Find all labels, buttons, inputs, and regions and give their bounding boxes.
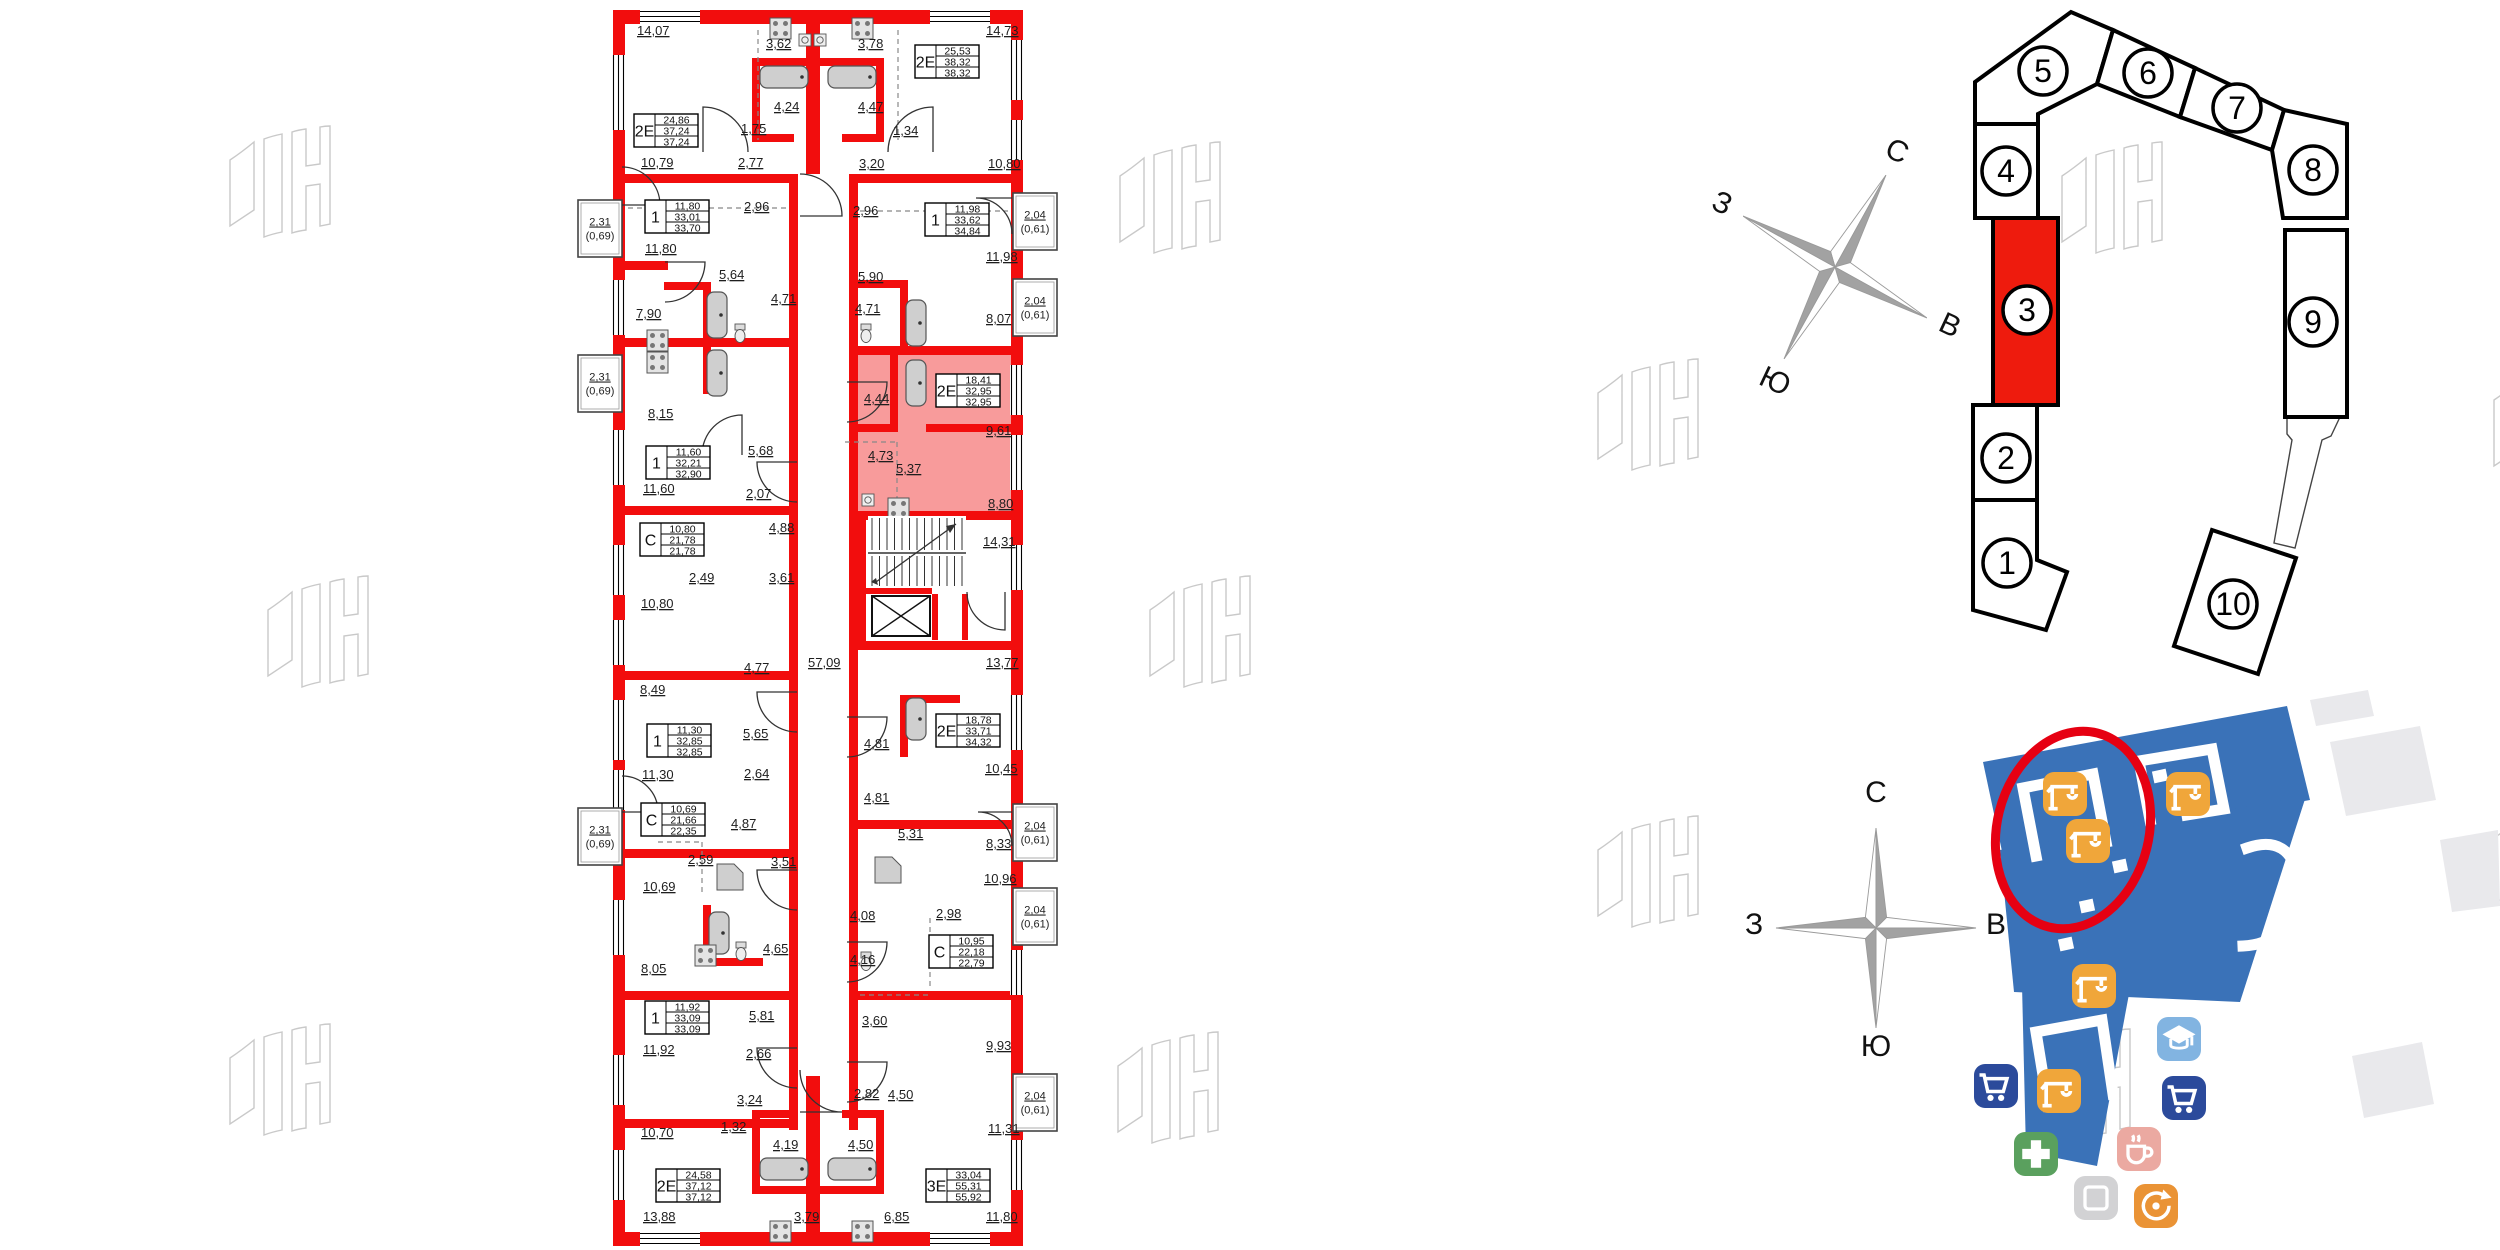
- toilet-icon: [736, 942, 746, 961]
- dim-label: 8,49: [640, 682, 665, 697]
- dim-label: 11,92: [643, 1042, 675, 1057]
- dim-label: 4,81: [864, 790, 889, 805]
- dim-label: 14,73: [986, 23, 1019, 38]
- dim-label: 4,87: [731, 816, 756, 831]
- wall: [613, 174, 798, 183]
- apartment-type-label: 1: [651, 1011, 660, 1028]
- bathtub-icon: [906, 698, 926, 740]
- dim-label: 4,08: [850, 908, 875, 923]
- dim-label: 2,96: [853, 203, 878, 218]
- section-number: 8: [2304, 152, 2322, 188]
- pn-logo-watermark-icon: [1598, 816, 1698, 927]
- balcony-coef-label: (0,69): [586, 386, 615, 398]
- wall: [613, 261, 668, 270]
- dim-label: 10,45: [985, 761, 1018, 776]
- apartment-card[interactable]: 111,6032,2132,90: [646, 446, 710, 480]
- apartment-area-value: 33,70: [674, 222, 700, 234]
- apartment-type-label: С: [646, 813, 658, 830]
- staircase: [868, 516, 966, 588]
- dim-label: 5,65: [743, 726, 768, 741]
- apartment-area-value: 37,24: [663, 136, 689, 148]
- balcony-area-label: 2,31: [589, 217, 610, 229]
- ghost-building: [2352, 1042, 2434, 1118]
- wall: [849, 424, 898, 432]
- apartment-area-value: 32,90: [675, 468, 701, 480]
- balcony-coef-label: (0,69): [586, 839, 615, 851]
- apartment-area-value: 22,35: [670, 825, 696, 837]
- dim-label: 5,31: [898, 826, 923, 841]
- wall: [932, 594, 938, 640]
- balcony-coef-label: (0,61): [1021, 1105, 1050, 1117]
- dim-label: 10,70: [641, 1125, 674, 1140]
- balcony: 2,31(0,69): [578, 200, 622, 257]
- dim-label: 8,05: [641, 961, 666, 976]
- dim-label: 5,90: [858, 269, 883, 284]
- wall: [752, 58, 884, 66]
- dim-label: 5,64: [719, 267, 744, 282]
- site-compass-icon: СЗВЮ: [1745, 776, 2006, 1063]
- section-number: 5: [2034, 53, 2052, 89]
- dim-label: 4,16: [850, 952, 875, 967]
- apartment-type-label: 2Е: [657, 1179, 677, 1196]
- wall: [849, 991, 1023, 1000]
- apartment-type-label: 3Е: [927, 1179, 947, 1196]
- dim-label: 8,07: [986, 311, 1011, 326]
- compass-direction-label: Ю: [1754, 360, 1795, 403]
- section-number: 1: [1998, 545, 2016, 581]
- dim-label: 3,20: [859, 156, 884, 171]
- apartment-card[interactable]: 111,3032,8532,85: [647, 724, 711, 758]
- pn-logo-watermark-icon: [1120, 142, 1220, 253]
- ghost-building: [2310, 690, 2374, 726]
- balcony-coef-label: (0,61): [1021, 919, 1050, 931]
- scheme-section-6[interactable]: 6: [2097, 30, 2195, 117]
- dim-label: 11,31: [988, 1121, 1020, 1136]
- balcony-outline: [1013, 193, 1057, 250]
- crane-icon: [2166, 772, 2210, 816]
- dim-label: 4,88: [769, 520, 794, 535]
- wall: [664, 282, 711, 290]
- balcony-area-label: 2,31: [589, 825, 610, 837]
- apartment-card[interactable]: 111,9233,0933,09: [645, 1001, 709, 1035]
- dim-label: 11,80: [986, 1209, 1018, 1224]
- ghost-building: [2330, 726, 2436, 816]
- compass-direction-label: С: [1880, 132, 1914, 171]
- apartment-area-value: 34,84: [954, 225, 980, 237]
- dim-label: 10,69: [643, 879, 676, 894]
- cart-icon: [1974, 1064, 2018, 1108]
- compass-direction-label: Ю: [1861, 1030, 1891, 1063]
- scheme-compass-icon: СЗВЮ: [1707, 132, 1966, 403]
- dim-label: 4,44: [864, 391, 889, 406]
- compass-direction-label: З: [1745, 908, 1763, 941]
- dim-label: 9,61: [986, 423, 1011, 438]
- stove-icon: [647, 330, 668, 351]
- apartment-type-label: 2Е: [916, 55, 936, 72]
- dim-label: 4,81: [864, 736, 889, 751]
- wall: [849, 346, 1023, 355]
- section-number: 6: [2139, 55, 2157, 91]
- icon-tile: [2117, 1127, 2161, 1171]
- scheme-section-8[interactable]: 8: [2272, 110, 2347, 218]
- dim-label: 4,50: [848, 1137, 873, 1152]
- dim-label: 4,77: [744, 660, 769, 675]
- plus-icon: [2014, 1132, 2058, 1176]
- balcony-area-label: 2,04: [1024, 1091, 1045, 1103]
- swirl-icon: [2134, 1184, 2178, 1228]
- dim-label: 4,50: [888, 1087, 913, 1102]
- crane-icon: [2066, 819, 2110, 863]
- shower-icon: [875, 857, 901, 883]
- stove-icon: [888, 498, 909, 519]
- apartment-card[interactable]: 2Е25,5338,3238,32: [915, 45, 979, 79]
- washer-icon: [814, 34, 826, 46]
- dim-label: 11,80: [645, 241, 677, 256]
- apartment-area-value: 22,79: [958, 957, 984, 969]
- section-number: 7: [2228, 90, 2246, 126]
- apartment-card[interactable]: 2Е24,8637,2437,24: [634, 114, 698, 148]
- plan-canvas: 2,31(0,69)2,31(0,69)2,31(0,69)2,04(0,61)…: [0, 0, 2500, 1250]
- balcony-coef-label: (0,61): [1021, 310, 1050, 322]
- wall: [890, 352, 898, 430]
- dim-label: 4,47: [858, 99, 883, 114]
- shower-icon: [717, 864, 743, 890]
- apartment-area-value: 55,92: [955, 1191, 981, 1203]
- wall: [962, 594, 968, 640]
- pn-logo-watermark-icon: [2494, 366, 2500, 477]
- dim-label: 4,73: [868, 448, 893, 463]
- dim-label: 2,66: [746, 1046, 771, 1061]
- building-scheme: 56784321910: [1973, 12, 2347, 674]
- apartment-type-label: С: [645, 533, 657, 550]
- balcony-outline: [578, 200, 622, 257]
- wall: [849, 641, 1023, 650]
- scheme-section-3[interactable]: 3: [1993, 218, 2058, 405]
- cap-icon: [2157, 1017, 2201, 1061]
- wall: [849, 820, 1023, 829]
- bathtub-icon: [707, 350, 727, 396]
- dim-label: 3,24: [737, 1092, 762, 1107]
- dim-label: 4,65: [763, 941, 788, 956]
- cart-icon: [2162, 1076, 2206, 1120]
- toilet-icon: [861, 324, 871, 343]
- balcony-outline: [1013, 1074, 1057, 1131]
- bathtub-icon: [828, 1158, 876, 1180]
- dim-label: 1,75: [741, 121, 766, 136]
- wall: [752, 1110, 760, 1194]
- dim-label: 4,71: [771, 291, 796, 306]
- washer-icon: [862, 494, 874, 506]
- crane-icon: [2072, 964, 2116, 1008]
- apartment-card[interactable]: 2Е24,5837,1237,12: [656, 1169, 720, 1203]
- section-number: 4: [1997, 153, 2015, 189]
- stove-icon: [695, 945, 716, 966]
- balcony-coef-label: (0,69): [586, 231, 615, 243]
- apartment-type-label: 1: [653, 734, 662, 751]
- balcony-outline: [1013, 279, 1057, 336]
- dim-label: 5,68: [748, 443, 773, 458]
- dim-label: 11,60: [643, 481, 675, 496]
- dim-label: 1,32: [721, 1119, 746, 1134]
- stove-icon: [852, 1221, 873, 1242]
- toilet-icon: [735, 324, 745, 343]
- scheme-section-4[interactable]: 4: [1975, 124, 2038, 218]
- balcony: 2,04(0,61): [1013, 804, 1057, 861]
- scheme-section-1[interactable]: 1: [1973, 500, 2067, 630]
- crane-icon: [2037, 1069, 2081, 1113]
- dim-label: 1,34: [893, 123, 918, 138]
- bathtub-icon: [760, 1158, 808, 1180]
- apartment-area-value: 33,09: [674, 1023, 700, 1035]
- dim-label: 2,59: [688, 852, 713, 867]
- apartment-area-value: 37,12: [685, 1191, 711, 1203]
- box-icon: [2074, 1176, 2118, 1220]
- dim-label: 3,79: [794, 1209, 819, 1224]
- wall: [876, 1110, 884, 1194]
- dim-label: 2,07: [746, 486, 771, 501]
- balcony: 2,31(0,69): [578, 808, 622, 865]
- stove-icon: [647, 352, 668, 373]
- wall: [613, 506, 798, 515]
- bathtub-icon: [906, 360, 926, 406]
- floor-plan-page: 2,31(0,69)2,31(0,69)2,31(0,69)2,04(0,61)…: [0, 0, 2500, 1250]
- wall: [849, 174, 858, 1130]
- apartment-area-value: 32,95: [965, 396, 991, 408]
- bathtub-icon: [828, 66, 876, 88]
- dim-label: 11,30: [642, 767, 674, 782]
- apartment-type-label: С: [934, 945, 946, 962]
- dim-label: 2,77: [738, 155, 763, 170]
- apartment-area-value: 38,32: [944, 67, 970, 79]
- pn-logo-watermark-icon: [230, 126, 330, 237]
- icon-tile: [2074, 1176, 2118, 1220]
- wall: [849, 174, 1023, 183]
- dim-label: 13,77: [986, 655, 1019, 670]
- dim-label: 8,15: [648, 406, 673, 421]
- apartment-type-label: 1: [931, 213, 940, 230]
- site-plan: [1974, 690, 2500, 1228]
- apartment-card[interactable]: 3Е33,0455,3155,92: [926, 1169, 990, 1203]
- dim-label: 10,80: [988, 156, 1021, 171]
- dim-label: 10,79: [641, 155, 674, 170]
- apartment-card[interactable]: С10,9522,1822,79: [929, 935, 993, 969]
- compass-direction-label: В: [1986, 908, 2006, 941]
- pn-logo-watermark-icon: [2062, 142, 2162, 253]
- stove-icon: [770, 1221, 791, 1242]
- wall: [752, 1186, 884, 1194]
- ghost-building: [2440, 830, 2500, 912]
- dim-label: 4,24: [774, 99, 799, 114]
- apartment-area-value: 34,32: [965, 736, 991, 748]
- door-arc: [800, 174, 842, 216]
- apartment-type-label: 1: [651, 210, 660, 227]
- dim-label: 3,62: [766, 36, 791, 51]
- balcony: 2,31(0,69): [578, 355, 622, 412]
- dim-label: 14,31: [983, 534, 1016, 549]
- balcony-area-label: 2,04: [1024, 821, 1045, 833]
- pn-logo-watermark-icon: [1118, 1032, 1218, 1143]
- dim-label: 11,98: [986, 249, 1018, 264]
- balcony-coef-label: (0,61): [1021, 835, 1050, 847]
- scheme-section-9[interactable]: 9: [2285, 230, 2347, 417]
- wall: [842, 134, 884, 142]
- pn-logo-watermark-icon: [268, 576, 368, 687]
- icon-tile: [2162, 1076, 2206, 1120]
- dim-label: 9,93: [986, 1038, 1011, 1053]
- dim-label: 8,80: [988, 496, 1013, 511]
- wall: [858, 588, 932, 594]
- dim-label: 2,82: [854, 1086, 879, 1101]
- balcony: 2,04(0,61): [1013, 193, 1057, 250]
- wall: [752, 1110, 794, 1118]
- cup-icon: [2117, 1127, 2161, 1171]
- scheme-section-10[interactable]: 10: [2174, 530, 2296, 674]
- dim-label: 4,71: [855, 301, 880, 316]
- pn-logo-watermark-icon: [1150, 576, 1250, 687]
- crane-icon: [2043, 772, 2087, 816]
- balcony-coef-label: (0,61): [1021, 224, 1050, 236]
- compass-direction-label: С: [1865, 776, 1887, 809]
- apartment-card[interactable]: 2Е18,4132,9532,95: [936, 374, 1000, 408]
- scheme-section-5[interactable]: 5: [1975, 12, 2113, 124]
- bathtub-icon: [906, 300, 926, 346]
- dim-label: 3,61: [769, 570, 794, 585]
- dim-label: 8,33: [986, 836, 1011, 851]
- dim-label: 3,51: [771, 854, 796, 869]
- balcony: 2,04(0,61): [1013, 279, 1057, 336]
- compass-direction-label: В: [1934, 306, 1966, 344]
- dim-label: 14,07: [637, 23, 670, 38]
- wall: [613, 991, 798, 1000]
- elevator: [872, 596, 930, 636]
- apartment-card[interactable]: С10,6921,6622,35: [641, 803, 705, 837]
- dim-label: 57,09: [808, 655, 841, 670]
- dim-label: 3,78: [858, 36, 883, 51]
- balcony-outline: [578, 808, 622, 865]
- section-number: 9: [2304, 304, 2322, 340]
- pn-logo-watermark-icon: [230, 1024, 330, 1135]
- balcony-area-label: 2,31: [589, 372, 610, 384]
- apartment-area-value: 32,85: [676, 746, 702, 758]
- dim-label: 10,80: [641, 596, 674, 611]
- apartment-card[interactable]: 111,9833,6234,84: [925, 203, 989, 237]
- apartment-type-label: 2Е: [937, 384, 957, 401]
- pn-logo-watermark-icon: [1598, 359, 1698, 470]
- dim-label: 2,98: [936, 906, 961, 921]
- dim-label: 2,64: [744, 766, 769, 781]
- scheme-section-7[interactable]: 7: [2180, 68, 2284, 150]
- dim-label: 4,19: [773, 1137, 798, 1152]
- bathtub-icon: [760, 66, 808, 88]
- washer-icon: [799, 34, 811, 46]
- apartment-card[interactable]: С10,8021,7821,78: [640, 523, 704, 557]
- balcony-area-label: 2,04: [1024, 296, 1045, 308]
- wall: [613, 671, 798, 680]
- apartment-area-value: 21,78: [669, 545, 695, 557]
- compass-direction-label: З: [1707, 185, 1737, 223]
- dim-label: 7,90: [636, 306, 661, 321]
- balcony: 2,04(0,61): [1013, 1074, 1057, 1131]
- apartment-card[interactable]: 111,8033,0133,70: [645, 200, 709, 234]
- bathtub-icon: [707, 292, 727, 338]
- section-number: 2: [1997, 440, 2015, 476]
- apartment-type-label: 2Е: [937, 724, 957, 741]
- balcony: 2,04(0,61): [1013, 888, 1057, 945]
- section-number: 10: [2215, 586, 2251, 622]
- section-connector: [2274, 417, 2340, 548]
- balcony-outline: [578, 355, 622, 412]
- dim-label: 2,96: [744, 199, 769, 214]
- dim-label: 6,85: [884, 1209, 909, 1224]
- floor-plan: 2,31(0,69)2,31(0,69)2,31(0,69)2,04(0,61)…: [578, 10, 1057, 1246]
- apartment-type-label: 1: [652, 456, 661, 473]
- balcony-area-label: 2,04: [1024, 210, 1045, 222]
- door-arc: [967, 592, 1005, 630]
- balcony-outline: [1013, 804, 1057, 861]
- wall: [858, 511, 866, 649]
- dim-label: 5,81: [749, 1008, 774, 1023]
- dim-label: 10,96: [984, 871, 1017, 886]
- apartment-type-label: 2Е: [635, 124, 655, 141]
- wall: [842, 1110, 884, 1118]
- balcony-outline: [1013, 888, 1057, 945]
- dim-label: 2,49: [689, 570, 714, 585]
- wall: [789, 174, 798, 1130]
- dim-label: 5,37: [896, 461, 921, 476]
- dim-label: 13,88: [643, 1209, 676, 1224]
- icon-tile: [1974, 1064, 2018, 1108]
- scheme-section-2[interactable]: 2: [1973, 405, 2037, 500]
- apartment-card[interactable]: 2Е18,7833,7134,32: [936, 714, 1000, 748]
- balcony-area-label: 2,04: [1024, 905, 1045, 917]
- dim-label: 3,60: [862, 1013, 887, 1028]
- section-number: 3: [2018, 292, 2036, 328]
